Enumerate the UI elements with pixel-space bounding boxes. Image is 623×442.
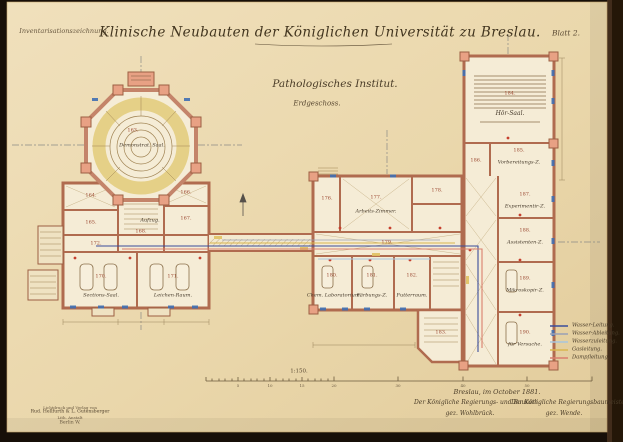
imprint-line: Lith. Anstalt bbox=[57, 416, 82, 420]
room-label: Demonstrat. Saal. bbox=[119, 144, 165, 149]
room-label: Vorbereitungs-Z. bbox=[498, 161, 541, 166]
room-label: für Versuche. bbox=[508, 343, 542, 348]
imprint-line: Berlin W. bbox=[59, 422, 80, 427]
scale-tick: 10 bbox=[267, 384, 272, 388]
room-label: Aufzug. bbox=[140, 219, 159, 224]
room-number: 180. bbox=[326, 274, 337, 279]
scale-ratio: 1:150. bbox=[290, 369, 308, 375]
room-label: Chem. Laboratorium. bbox=[307, 294, 361, 299]
room-label: Hör-Saal. bbox=[496, 111, 525, 117]
right-official-title: Der Königliche Regierungsbaumeister. bbox=[511, 400, 623, 406]
room-number: 170. bbox=[95, 275, 106, 280]
room-label: Experimentir-Z. bbox=[505, 205, 545, 210]
room-number: 165. bbox=[85, 221, 96, 226]
room-number: 171. bbox=[167, 275, 178, 280]
room-number: 168. bbox=[135, 230, 146, 235]
room-number: 189. bbox=[519, 277, 530, 282]
room-number: 190. bbox=[519, 331, 530, 336]
scanned-plan-sheet: Inventarisationszeichnung. Klinische Neu… bbox=[0, 0, 623, 442]
room-number: 167. bbox=[180, 217, 191, 222]
room-number: 187. bbox=[519, 193, 530, 198]
right-signature: gez. Wende. bbox=[546, 411, 583, 417]
room-label: Arbeits-Zimmer. bbox=[356, 210, 397, 215]
room-number: 184. bbox=[504, 92, 515, 97]
scale-tick: 20 bbox=[331, 384, 336, 388]
left-signature: gez. Wohlbrück. bbox=[446, 411, 495, 417]
room-number: 188. bbox=[519, 229, 530, 234]
room-number: 178. bbox=[431, 189, 442, 194]
book-edge bbox=[612, 0, 623, 442]
room-number: 166. bbox=[180, 191, 191, 196]
room-number: 185. bbox=[513, 149, 524, 154]
room-number: 172. bbox=[90, 242, 101, 247]
room-number: 163. bbox=[127, 129, 138, 134]
legend-entry-steam: Dampfleitung. bbox=[572, 355, 609, 360]
place-date: Breslau, im October 1881. bbox=[454, 389, 541, 396]
room-label: Futterraum. bbox=[397, 294, 428, 299]
room-number: 186. bbox=[470, 159, 481, 164]
legend-entry-drain: Wasser-Ableitung. bbox=[572, 331, 620, 336]
sheet-number: Blatt 2. bbox=[552, 29, 580, 37]
legend-entry-gas: Gasleitung. bbox=[572, 347, 602, 352]
room-number: 179. bbox=[381, 241, 392, 246]
legend-entry-water: Wasser-Leitung. bbox=[572, 323, 615, 328]
scale-tick: 30 bbox=[395, 384, 400, 388]
scale-tick: 15 bbox=[299, 384, 304, 388]
legend-entry-supply: Wasserzuleitung. bbox=[572, 339, 617, 344]
plan-subtitle: Pathologisches Institut. bbox=[272, 79, 397, 90]
room-label: Sections-Saal. bbox=[83, 294, 119, 299]
room-number: 176. bbox=[321, 197, 332, 202]
room-number: 181. bbox=[366, 274, 377, 279]
room-label: Mikroskopir-Z. bbox=[506, 289, 544, 294]
room-label: Leichen-Raum. bbox=[154, 294, 192, 299]
binding-strip bbox=[607, 0, 612, 442]
room-label: Färbungs-Z. bbox=[357, 294, 388, 299]
drawing-type-annotation: Inventarisationszeichnung. bbox=[19, 28, 108, 35]
room-label: Assistenten-Z. bbox=[507, 241, 543, 246]
room-number: 183. bbox=[435, 331, 446, 336]
room-number: 177. bbox=[370, 196, 381, 201]
floor-label: Erdgeschoss. bbox=[293, 101, 340, 108]
scale-tick: 5 bbox=[237, 384, 240, 388]
page-title: Klinische Neubauten der Königlichen Univ… bbox=[99, 26, 540, 40]
room-number: 164. bbox=[85, 194, 96, 199]
room-number: 182. bbox=[406, 274, 417, 279]
